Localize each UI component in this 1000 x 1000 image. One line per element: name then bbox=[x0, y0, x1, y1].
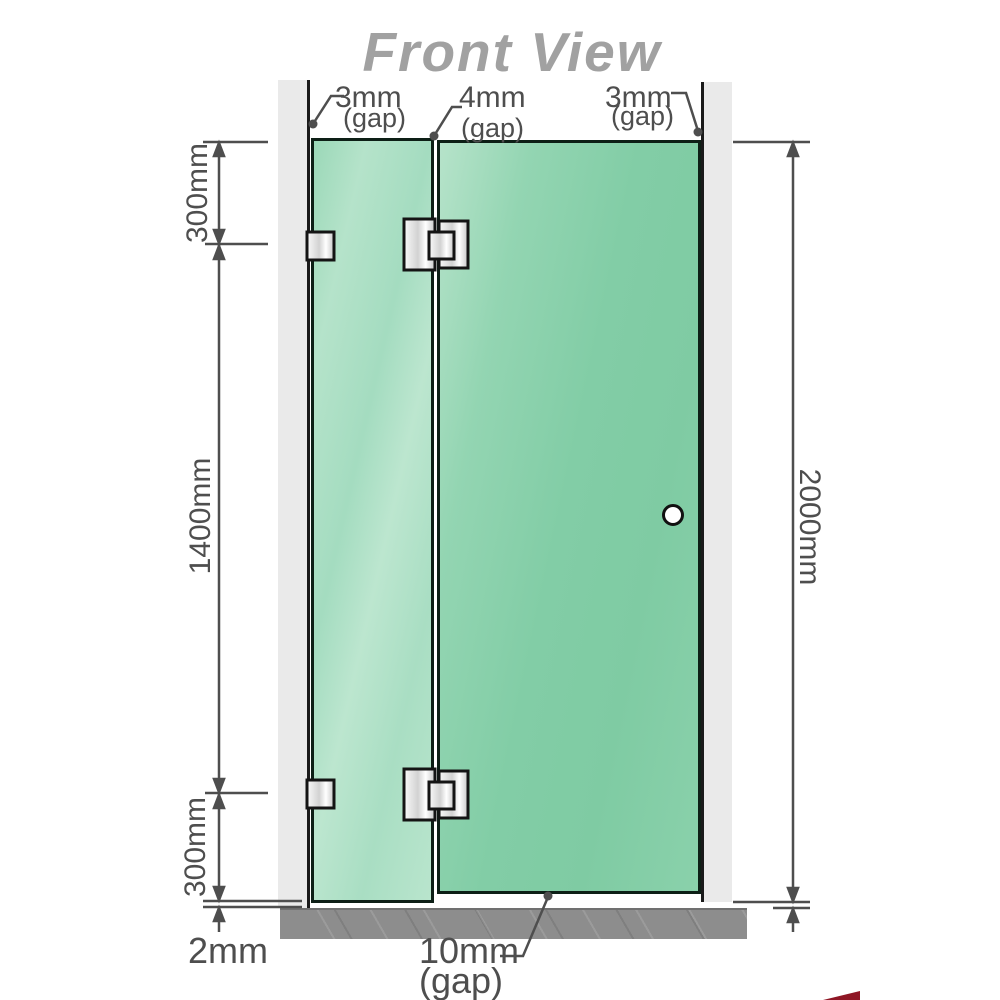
watermark-fragment bbox=[823, 991, 860, 1000]
door-handle-knob bbox=[662, 504, 684, 526]
gap-label-top-middle-unit: (gap) bbox=[461, 113, 524, 144]
right-wall-channel bbox=[701, 82, 732, 902]
dimension-floor-gap: 2mm bbox=[188, 930, 268, 972]
dimension-lower-left: 300mm bbox=[180, 777, 212, 917]
diagram-title: Front View bbox=[362, 20, 661, 84]
gap-label-top-left-unit: (gap) bbox=[343, 103, 406, 134]
dimension-upper-left: 300mm bbox=[182, 123, 214, 263]
gap-label-top-middle-value: 4mm bbox=[459, 81, 526, 115]
gap-label-bottom-unit: (gap) bbox=[419, 960, 503, 1000]
front-view-diagram: Front View bbox=[0, 0, 1000, 1000]
fixed-glass-panel bbox=[311, 138, 434, 903]
left-wall-channel bbox=[278, 80, 310, 908]
gap-label-top-right-unit: (gap) bbox=[611, 101, 674, 132]
dimension-middle-left: 1400mm bbox=[185, 446, 217, 586]
dimension-total-height: 2000mm bbox=[793, 457, 825, 597]
